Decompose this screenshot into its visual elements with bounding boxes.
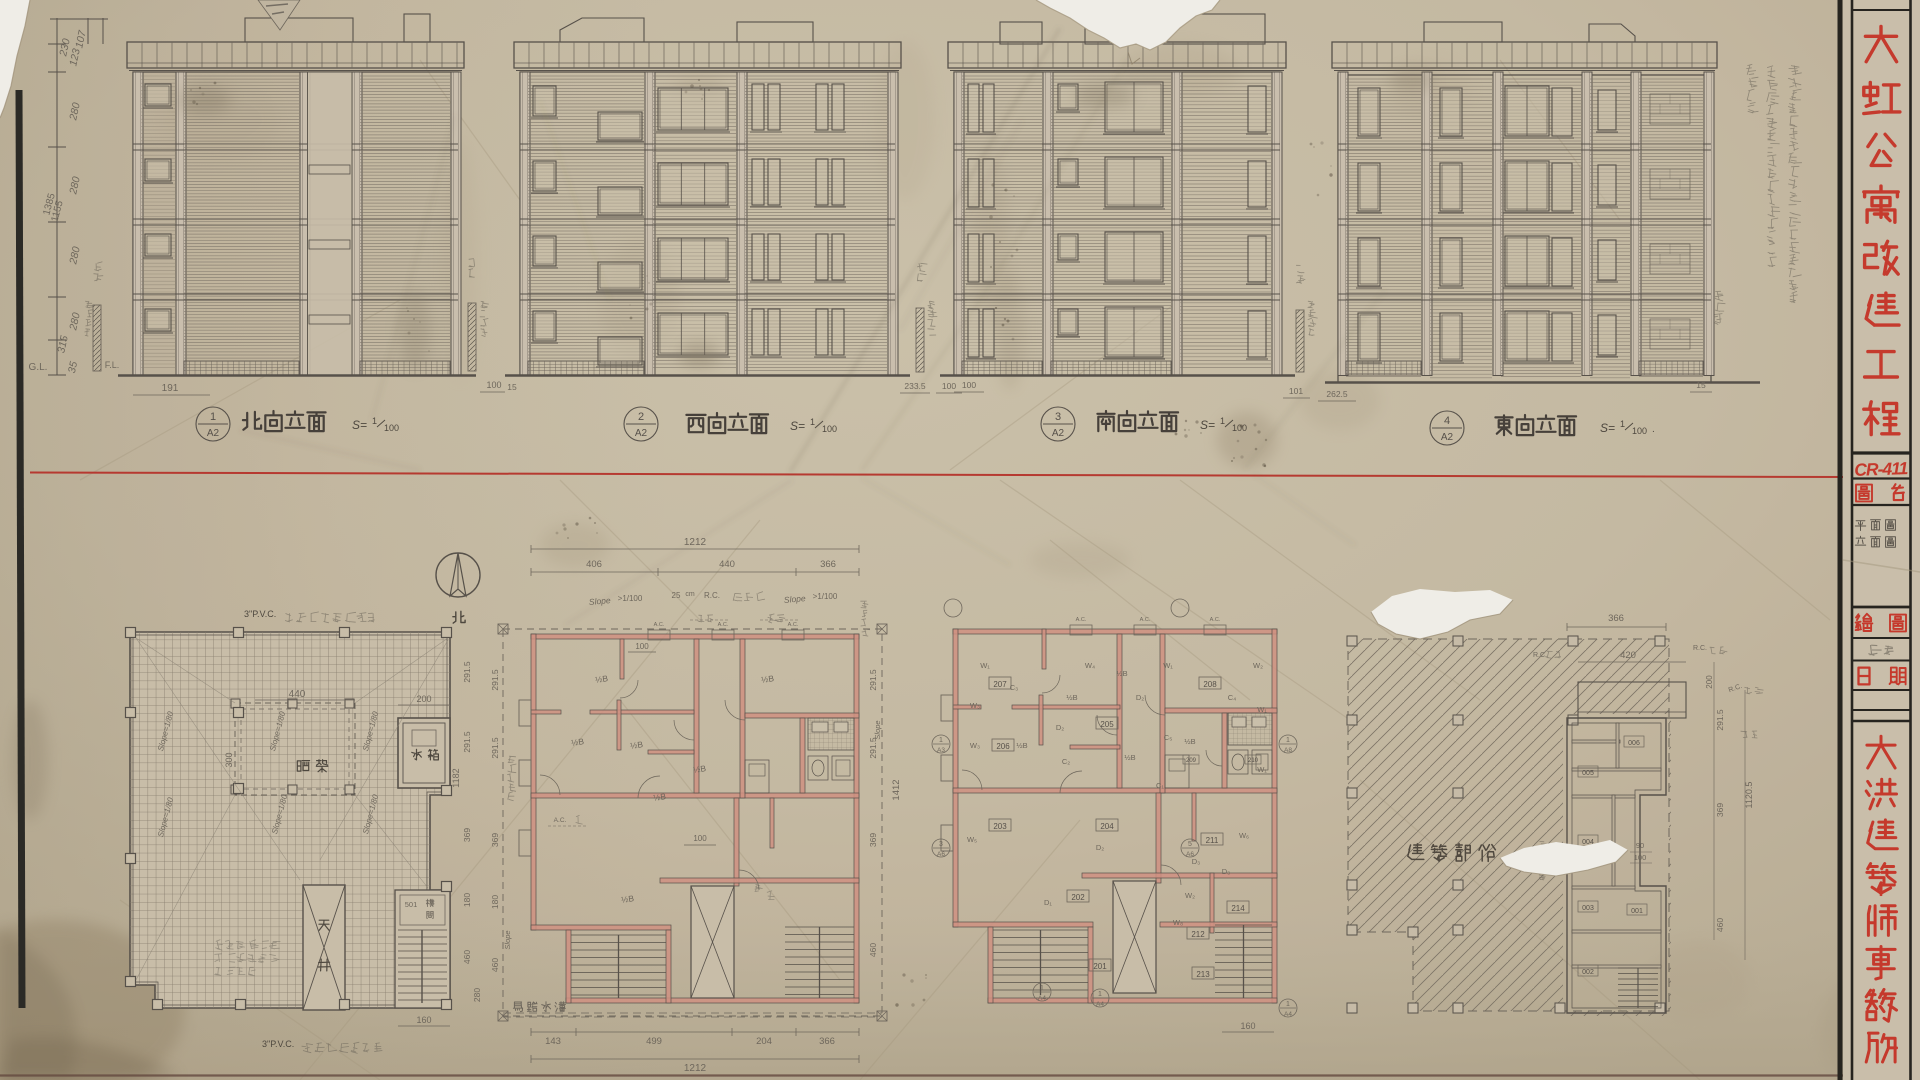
svg-text:4: 4 [1444,415,1450,427]
svg-text:3: 3 [939,841,943,848]
svg-text:15: 15 [507,382,517,392]
svg-text:W₁: W₁ [1257,705,1267,714]
svg-text:3"P.V.C.: 3"P.V.C. [244,609,276,619]
svg-text:W₈: W₈ [1173,918,1183,927]
svg-text:>1/100: >1/100 [618,594,643,603]
svg-text:180: 180 [490,895,500,909]
svg-text:1: 1 [1286,1001,1290,1008]
svg-text:1212: 1212 [684,1063,707,1074]
svg-text:3: 3 [1055,411,1061,423]
svg-text:90: 90 [1636,841,1644,850]
svg-text:A8: A8 [1284,747,1292,754]
svg-text:101: 101 [1289,386,1303,396]
svg-text:A.C.: A.C. [1076,617,1087,623]
svg-text:213: 213 [1196,970,1210,979]
svg-text:½B: ½B [1016,741,1027,750]
svg-text:A2: A2 [635,428,648,439]
svg-text:1: 1 [810,417,815,427]
svg-text:300: 300 [224,752,234,767]
svg-text:S=: S= [790,419,805,433]
svg-text:280: 280 [472,988,482,1002]
svg-text:369: 369 [490,833,500,847]
svg-text:291.5: 291.5 [1715,709,1725,731]
svg-text:291.5: 291.5 [490,737,500,759]
svg-text:cm: cm [685,591,695,598]
svg-text:1182: 1182 [451,768,461,787]
svg-text:A2: A2 [207,428,220,439]
svg-text:W₄: W₄ [1085,661,1095,670]
svg-text:A6: A6 [1186,851,1194,858]
svg-text:½B: ½B [571,736,585,748]
svg-text:501: 501 [405,900,418,909]
svg-text:D₂: D₂ [1136,693,1144,702]
svg-text:1412: 1412 [891,779,902,800]
svg-text:369: 369 [1715,803,1725,817]
svg-text:A2: A2 [1441,432,1454,443]
svg-text:420: 420 [1620,650,1636,661]
svg-text:D₂: D₂ [1096,843,1104,852]
svg-text:A.C.: A.C. [654,622,665,628]
svg-text:½B: ½B [761,673,775,685]
svg-text:100: 100 [962,380,976,390]
svg-text:143: 143 [545,1036,561,1047]
svg-text:1: 1 [210,411,216,423]
svg-text:A.C.: A.C. [718,622,729,628]
svg-text:D₃: D₃ [1192,857,1200,866]
svg-text:100: 100 [822,424,837,434]
svg-text:W₃: W₃ [970,701,980,710]
svg-text:369: 369 [462,828,472,842]
svg-text:W₆: W₆ [1239,831,1249,840]
svg-text:15: 15 [1696,380,1706,390]
svg-text:366: 366 [820,559,836,570]
svg-text:291.5: 291.5 [462,731,472,753]
svg-text:3"P.V.C.: 3"P.V.C. [262,1039,294,1049]
svg-text:001: 001 [1631,908,1643,915]
svg-text:W₃: W₃ [970,741,980,750]
svg-text:C₅: C₅ [1164,733,1172,742]
svg-text:A4: A4 [1284,1011,1292,1018]
svg-text:440: 440 [719,559,735,570]
svg-text:W₁: W₁ [980,661,990,670]
svg-text:460: 460 [462,950,472,964]
svg-text:>1/100: >1/100 [813,592,838,601]
svg-text:180: 180 [462,893,472,907]
svg-text:G.L.: G.L. [29,362,48,373]
svg-text:209: 209 [1186,758,1197,764]
svg-text:C₁: C₁ [1156,781,1164,790]
svg-text:R.C.: R.C. [1693,645,1707,652]
svg-text:100: 100 [1634,853,1647,862]
svg-text:D₁: D₁ [1044,898,1052,907]
svg-text:R.C.: R.C. [1533,652,1547,659]
svg-text:212: 212 [1191,930,1205,939]
svg-text:½B: ½B [1124,753,1135,762]
svg-text:½B: ½B [653,791,667,803]
svg-text:369: 369 [868,833,878,847]
svg-text:Slope: Slope [503,930,512,949]
svg-text:291.5: 291.5 [462,661,472,683]
svg-text:201: 201 [1093,962,1107,971]
svg-text:206: 206 [996,742,1010,751]
svg-text:A3: A3 [937,747,945,754]
svg-text:C₄: C₄ [1228,693,1236,702]
svg-text:207: 207 [993,680,1007,689]
svg-text:291.5: 291.5 [868,669,878,691]
svg-text:1: 1 [1220,416,1225,426]
svg-text:440: 440 [289,689,306,700]
svg-text:A.C.: A.C. [554,817,567,824]
svg-text:Slope: Slope [873,720,882,739]
svg-text:100: 100 [942,381,956,391]
svg-text:.: . [1652,424,1655,435]
svg-text:½B: ½B [595,673,609,685]
svg-text:1: 1 [1098,991,1102,998]
svg-text:W₅: W₅ [967,835,977,844]
svg-text:204: 204 [756,1036,772,1047]
svg-text:366: 366 [819,1036,835,1047]
svg-text:½B: ½B [630,739,644,751]
svg-text:W₂: W₂ [1253,661,1263,670]
svg-text:460: 460 [868,943,878,957]
svg-text:005: 005 [1582,770,1594,777]
svg-text:204: 204 [1100,822,1114,831]
svg-text:D₃: D₃ [1222,867,1230,876]
svg-text:A6: A6 [937,851,945,858]
svg-text:100: 100 [486,380,501,390]
svg-text:203: 203 [993,822,1007,831]
svg-text:R.C.: R.C. [704,591,720,600]
svg-text:211: 211 [1206,836,1219,845]
svg-text:C₂: C₂ [1062,757,1070,766]
svg-text:½B: ½B [621,893,635,905]
svg-text:210: 210 [1248,758,1259,764]
svg-text:262.5: 262.5 [1326,389,1348,399]
svg-text:100: 100 [384,423,399,433]
svg-text:460: 460 [1715,918,1725,932]
svg-text:499: 499 [646,1036,662,1047]
svg-text:291.5: 291.5 [490,669,500,691]
svg-text:100: 100 [693,834,707,843]
svg-text:A4: A4 [1096,1001,1104,1008]
svg-text:100: 100 [635,642,649,651]
svg-text:214: 214 [1231,904,1245,913]
svg-text:½B: ½B [1066,693,1077,702]
svg-text:W₁: W₁ [1257,765,1267,774]
svg-text:S=: S= [1600,421,1615,435]
svg-text:205: 205 [1100,720,1114,729]
svg-text:1: 1 [1286,737,1290,744]
svg-text:25: 25 [672,591,681,600]
svg-text:½B: ½B [1116,669,1127,678]
svg-text:C₃: C₃ [1010,683,1018,692]
svg-text:CR-411: CR-411 [1854,458,1908,480]
svg-text:2: 2 [638,411,644,423]
svg-text:1: 1 [1620,419,1625,429]
svg-text:003: 003 [1582,905,1594,912]
svg-text:1: 1 [1040,985,1044,992]
svg-text:W₁: W₁ [1163,661,1173,670]
svg-text:A.C.: A.C. [1210,617,1221,623]
svg-text:160: 160 [416,1015,431,1025]
svg-text:A.C.: A.C. [1140,617,1151,623]
svg-text:208: 208 [1203,680,1217,689]
svg-text:202: 202 [1071,893,1085,902]
svg-text:S=: S= [352,418,367,432]
svg-text:A2: A2 [1052,428,1065,439]
svg-text:006: 006 [1628,740,1640,747]
svg-text:406: 406 [586,559,602,570]
svg-text:366: 366 [1608,613,1624,624]
svg-text:D₂: D₂ [1056,723,1064,732]
svg-text:460: 460 [490,958,500,972]
svg-text:100: 100 [1232,423,1247,433]
svg-text:200: 200 [416,694,431,704]
svg-text:002: 002 [1582,969,1594,976]
svg-text:1: 1 [939,737,943,744]
svg-text:F.L.: F.L. [105,360,120,370]
svg-text:W₂: W₂ [1185,891,1195,900]
svg-text:191: 191 [162,383,179,394]
svg-text:100: 100 [1632,426,1647,436]
svg-text:5: 5 [1188,841,1192,848]
svg-text:S=: S= [1200,418,1215,432]
svg-text:1120.5: 1120.5 [1744,782,1754,809]
svg-text:200: 200 [1705,675,1714,689]
svg-text:½B: ½B [693,763,707,775]
svg-text:½B: ½B [1184,737,1195,746]
svg-text:A4: A4 [1038,995,1046,1002]
svg-text:Slope: Slope [783,593,806,605]
svg-text:160: 160 [1240,1021,1255,1031]
svg-text:A.C.: A.C. [788,622,799,628]
